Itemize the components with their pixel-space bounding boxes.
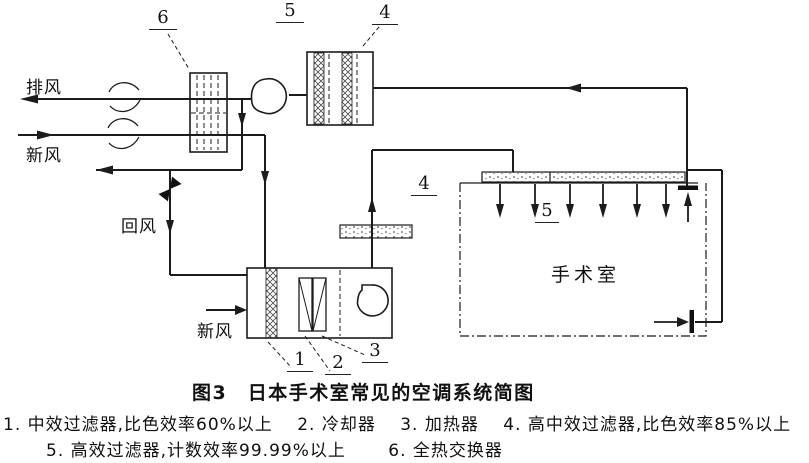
callout-6: 6 [149,9,177,30]
supply-fan-icon [358,285,389,316]
ceiling-hepa-filter-5 [482,172,685,182]
fresh-drop-arrow-icon [261,171,269,185]
callout-3: 3 [362,342,388,363]
figure-scan: 排风 新风 回风 新风 手术室 6 5 4 4 5 1 2 3 图3 日本手术室… [0,0,809,463]
filter-media [342,53,352,124]
operating-room-label: 手术室 [551,260,620,287]
supply-filter-4 [340,225,412,238]
exhaust-filter-box-4 [307,27,379,125]
fresh-air-label: 新风 [26,141,62,166]
relief-arrow-icon [96,166,113,175]
fresh-damper-icon [109,137,139,149]
room-return-arrow-icon [566,84,581,93]
callout-leader-6 [168,34,189,69]
ahu-fresh-air-label: 新风 [197,317,233,342]
up-arrow-icon [684,192,692,206]
callout-5-ceiling: 5 [535,202,559,223]
callout-4-exhaust: 4 [372,4,398,25]
right-arrow-icon [677,317,689,327]
callout-5-top: 5 [276,2,304,23]
fresh-damper-icon [108,119,138,128]
low-return-grille [654,310,694,333]
figure-legend-line1: 1. 中效过滤器,比色效率60%以上 2. 冷却器 3. 加热器 4. 高中效过… [3,410,791,435]
return-down-arrow-icon [166,220,174,234]
branch-down-arrow-icon [238,113,246,127]
figure-legend-line2: 5. 高效过滤器,计数效率99.99%以上 6. 全热交换器 [46,436,503,461]
callout-2: 2 [325,354,351,375]
flow-arrows [20,84,581,316]
ahu-fresh-arrow-icon [235,305,247,315]
exhaust-damper-icon [110,100,140,112]
exhaust-fan-icon [252,79,287,114]
medium-filter-1 [266,268,277,338]
supply-up-arrow-icon [368,197,376,212]
callout-4-supply: 4 [411,175,437,196]
return-air-label: 回风 [121,212,157,237]
damper-icons [108,83,140,149]
exhaust-damper-icon [109,83,139,92]
fresh-air-arrow-icon [37,131,54,140]
exhaust-air-label: 排风 [26,73,62,98]
figure-title: 图3 日本手术室常见的空调系统简图 [192,378,535,405]
callout-leader-4 [363,27,379,46]
supply-diffuser-arrows [496,184,670,218]
ceiling-return-grille [678,186,698,223]
callout-1: 1 [287,351,313,372]
filter-media [314,53,324,124]
